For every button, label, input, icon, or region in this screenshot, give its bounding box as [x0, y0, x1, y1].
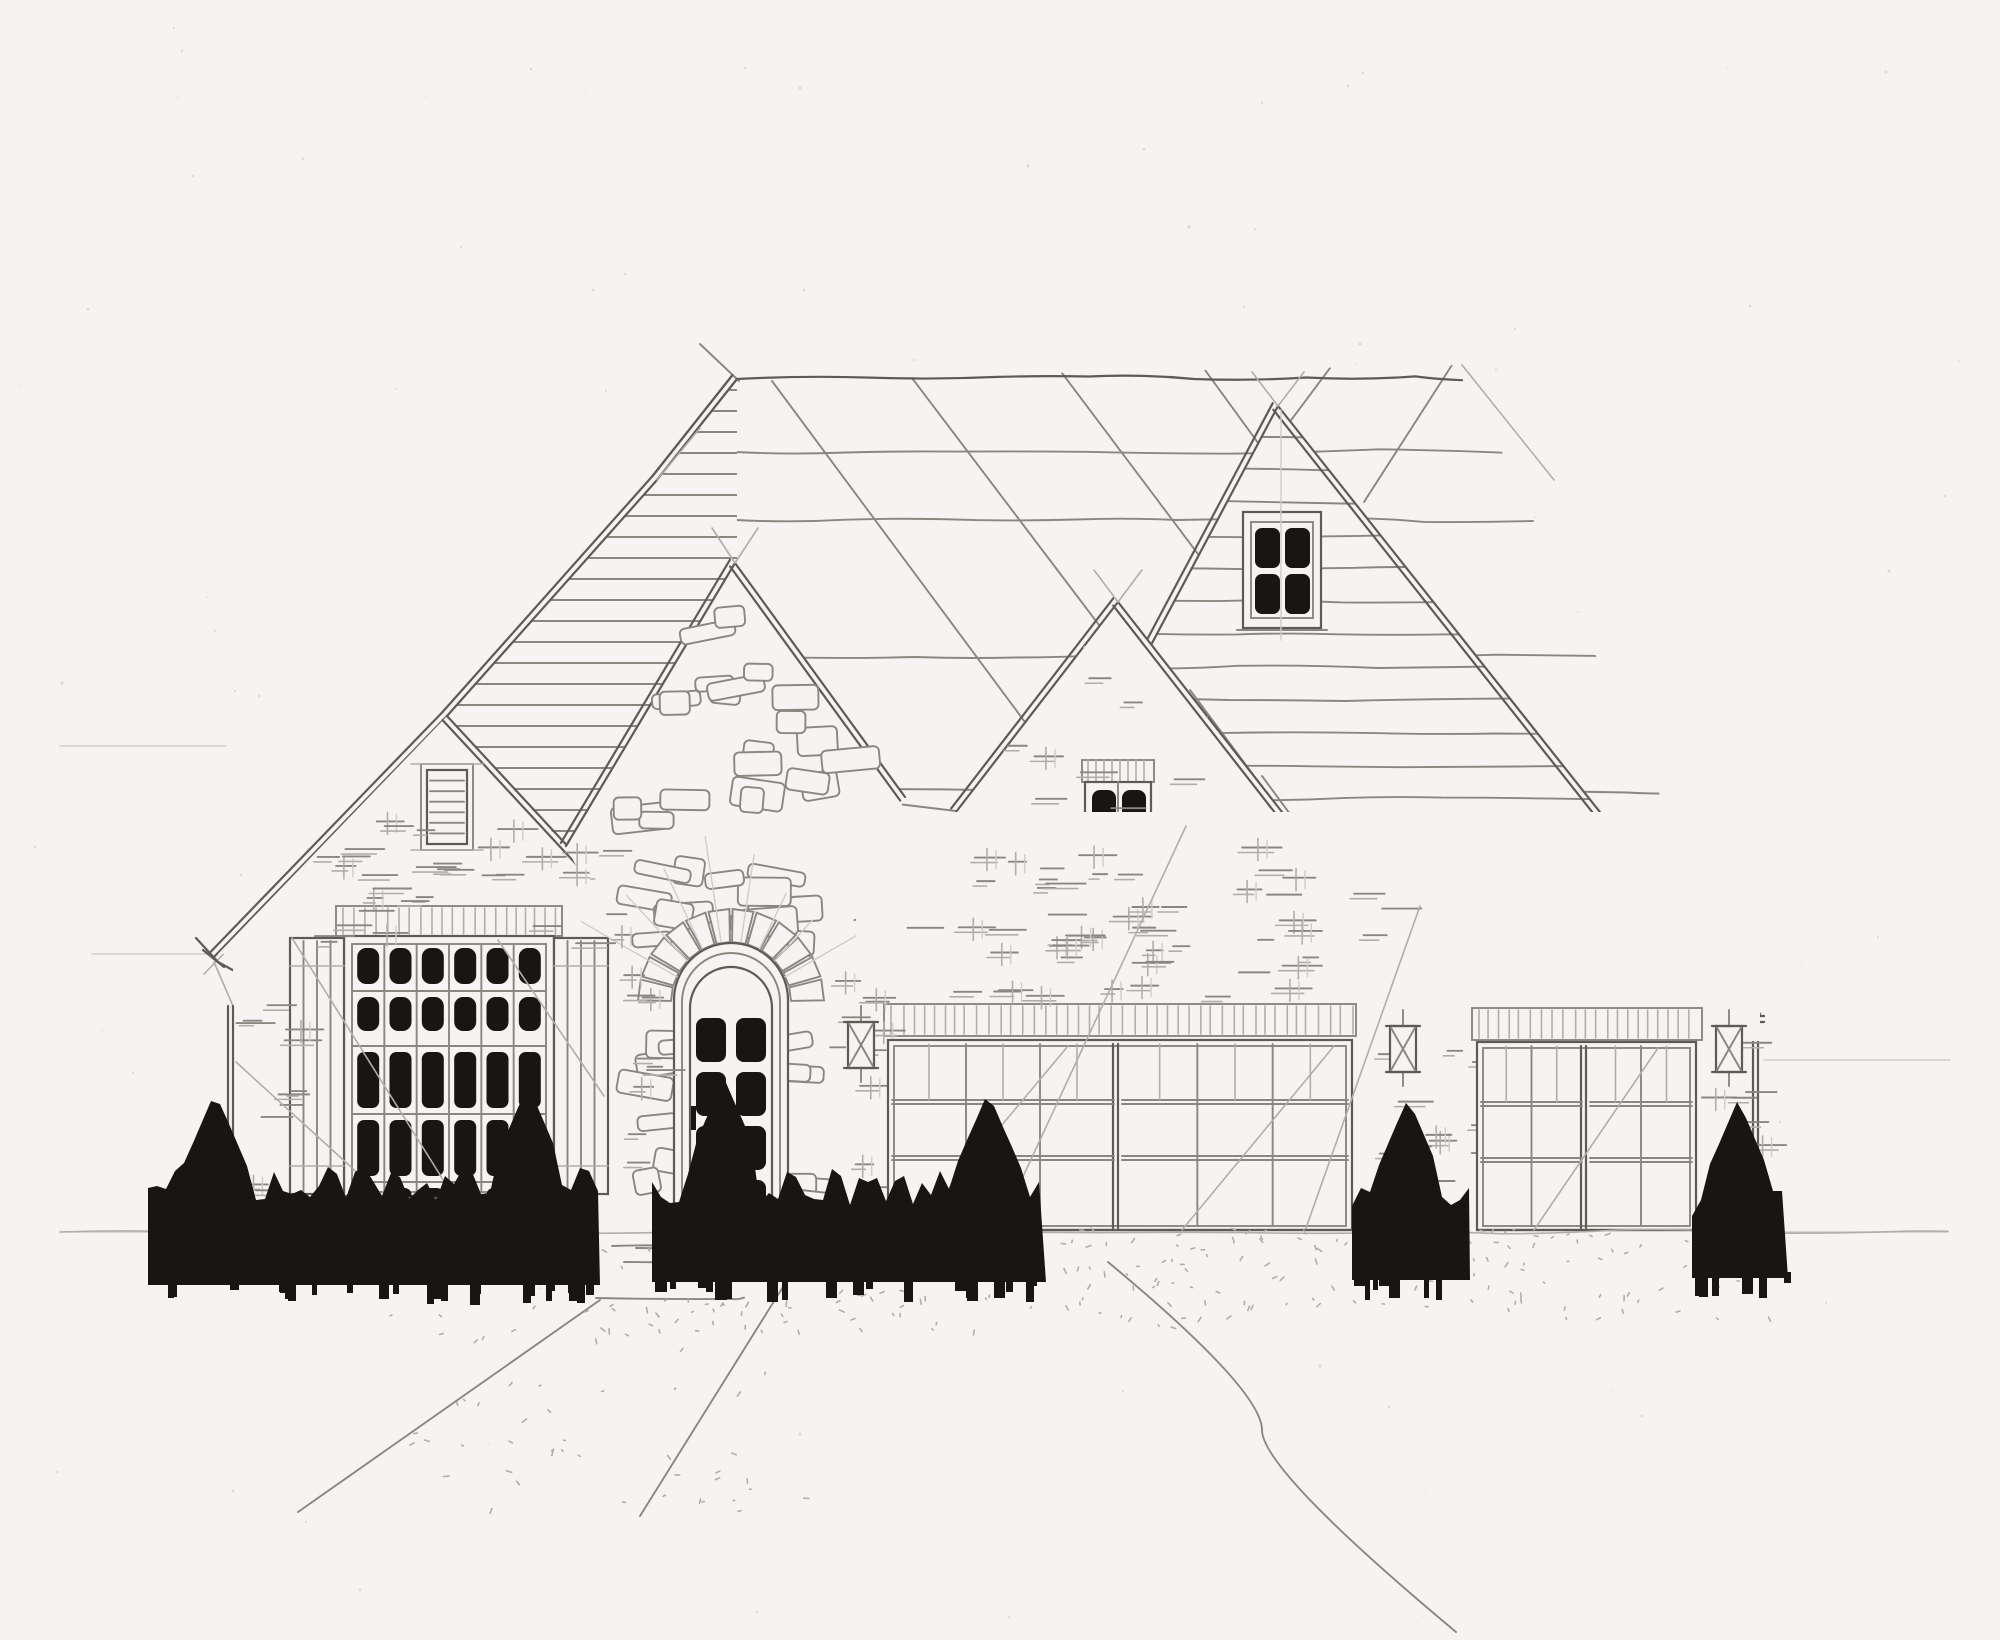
sketch-page [0, 0, 2000, 1640]
elevation-drawing [0, 0, 2000, 1640]
shutter-right [554, 938, 608, 1194]
driveway-edge [1108, 1262, 1456, 1632]
single-garage-door [1477, 1042, 1696, 1230]
attic-window [1237, 512, 1327, 630]
shrub-hedge [652, 1078, 1046, 1302]
left-wing-wall [214, 906, 663, 1232]
louver-vent [411, 764, 483, 850]
shutter-left [290, 938, 344, 1194]
